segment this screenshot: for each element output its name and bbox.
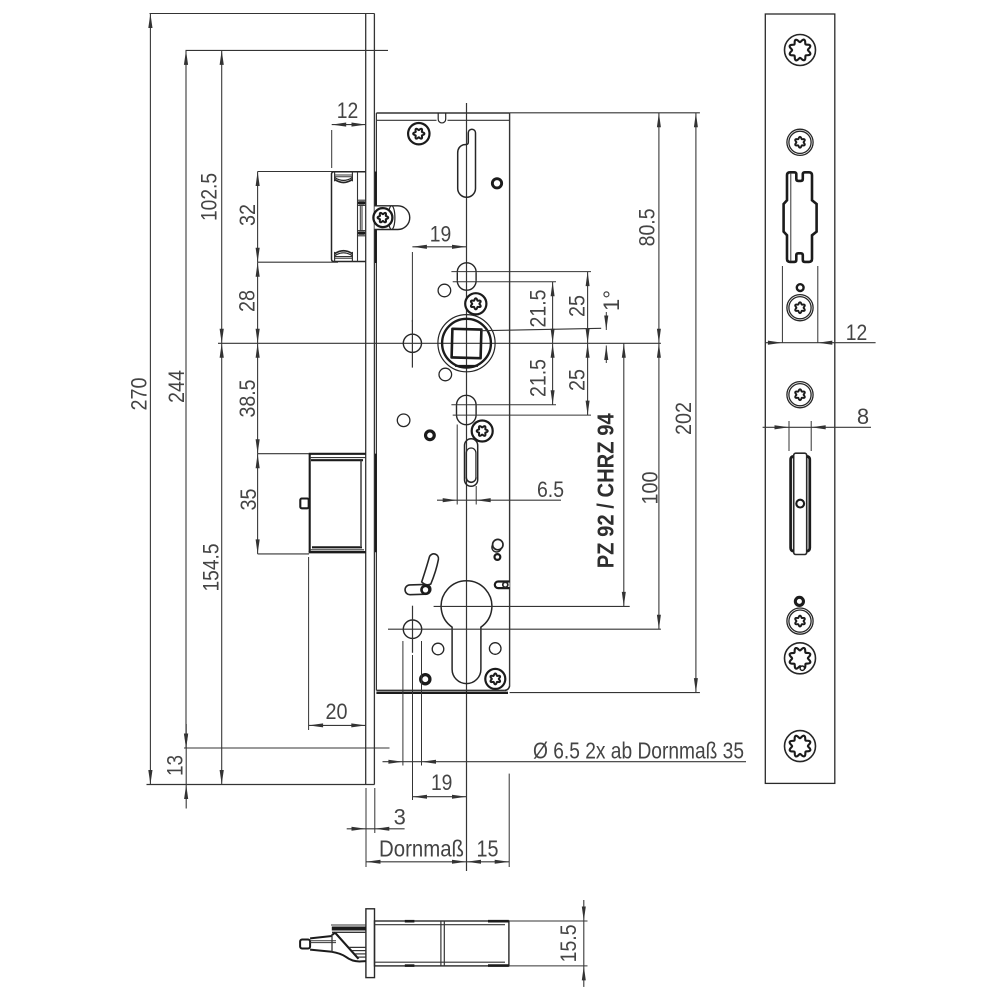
svg-text:25: 25: [565, 295, 590, 317]
svg-text:19: 19: [430, 222, 452, 247]
svg-text:244: 244: [164, 370, 189, 403]
svg-text:6.5: 6.5: [537, 477, 564, 502]
svg-text:21.5: 21.5: [525, 290, 550, 328]
svg-text:12: 12: [846, 320, 868, 345]
svg-text:PZ 92 / CHRZ 94: PZ 92 / CHRZ 94: [593, 413, 619, 568]
svg-text:80.5: 80.5: [634, 208, 659, 246]
svg-text:35: 35: [236, 489, 261, 511]
svg-text:8: 8: [857, 404, 869, 429]
svg-text:154.5: 154.5: [199, 544, 224, 592]
svg-text:28: 28: [234, 290, 259, 312]
svg-text:102.5: 102.5: [197, 173, 222, 221]
svg-text:3: 3: [394, 805, 406, 830]
svg-text:13: 13: [163, 755, 188, 776]
svg-text:21.5: 21.5: [525, 359, 550, 397]
svg-text:38.5: 38.5: [235, 380, 260, 418]
svg-text:100: 100: [638, 472, 663, 505]
svg-text:1°: 1°: [599, 290, 624, 311]
svg-text:15.5: 15.5: [556, 924, 581, 962]
svg-text:Dornmaß: Dornmaß: [379, 836, 464, 862]
svg-text:270: 270: [127, 378, 152, 411]
svg-text:202: 202: [671, 402, 696, 435]
svg-text:Ø 6.5 2x ab Dornmaß 35: Ø 6.5 2x ab Dornmaß 35: [533, 738, 744, 764]
svg-text:19: 19: [431, 770, 453, 795]
svg-text:32: 32: [235, 204, 260, 226]
svg-text:20: 20: [326, 699, 348, 724]
svg-text:15: 15: [477, 836, 499, 862]
svg-text:12: 12: [337, 98, 359, 123]
svg-text:25: 25: [565, 369, 590, 391]
